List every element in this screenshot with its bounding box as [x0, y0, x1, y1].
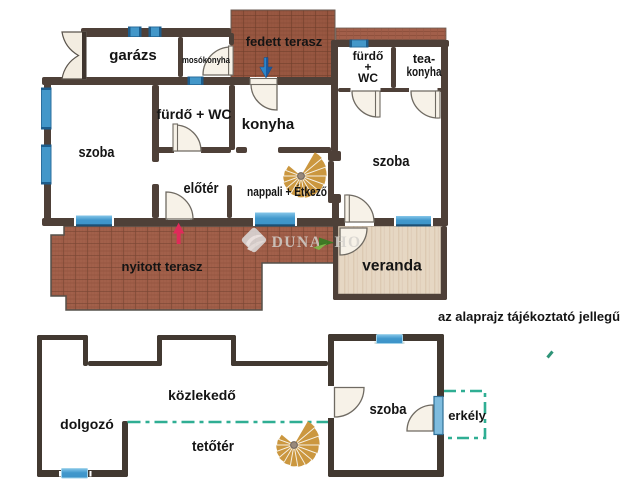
svg-text:WC: WC [358, 71, 378, 85]
svg-text:erkély: erkély [448, 408, 486, 423]
svg-text:dolgozó: dolgozó [60, 416, 114, 432]
svg-text:konyha: konyha [242, 116, 295, 133]
svg-text:konyha: konyha [407, 65, 443, 79]
svg-text:tetőtér: tetőtér [192, 439, 234, 455]
svg-text:szoba: szoba [370, 401, 408, 418]
svg-text:az alaprajz tájékoztató jelleg: az alaprajz tájékoztató jellegű [438, 309, 620, 324]
svg-text:előtér: előtér [184, 181, 219, 197]
svg-text:HO: HO [334, 234, 361, 251]
svg-text:nappali + Étkező: nappali + Étkező [247, 184, 327, 199]
svg-text:szoba: szoba [373, 153, 411, 170]
svg-text:mosókonyha: mosókonyha [182, 55, 231, 66]
svg-text:közlekedő: közlekedő [168, 387, 236, 403]
svg-text:fedett terasz: fedett terasz [246, 34, 323, 49]
svg-text:veranda: veranda [362, 258, 422, 275]
svg-text:garázs: garázs [109, 47, 157, 64]
svg-text:DUNA: DUNA [272, 234, 323, 251]
svg-text:tea-: tea- [413, 52, 435, 66]
svg-text:fürdő + WC: fürdő + WC [156, 106, 231, 122]
svg-text:nyitott terasz: nyitott terasz [122, 259, 203, 274]
svg-text:szoba: szoba [79, 144, 116, 161]
